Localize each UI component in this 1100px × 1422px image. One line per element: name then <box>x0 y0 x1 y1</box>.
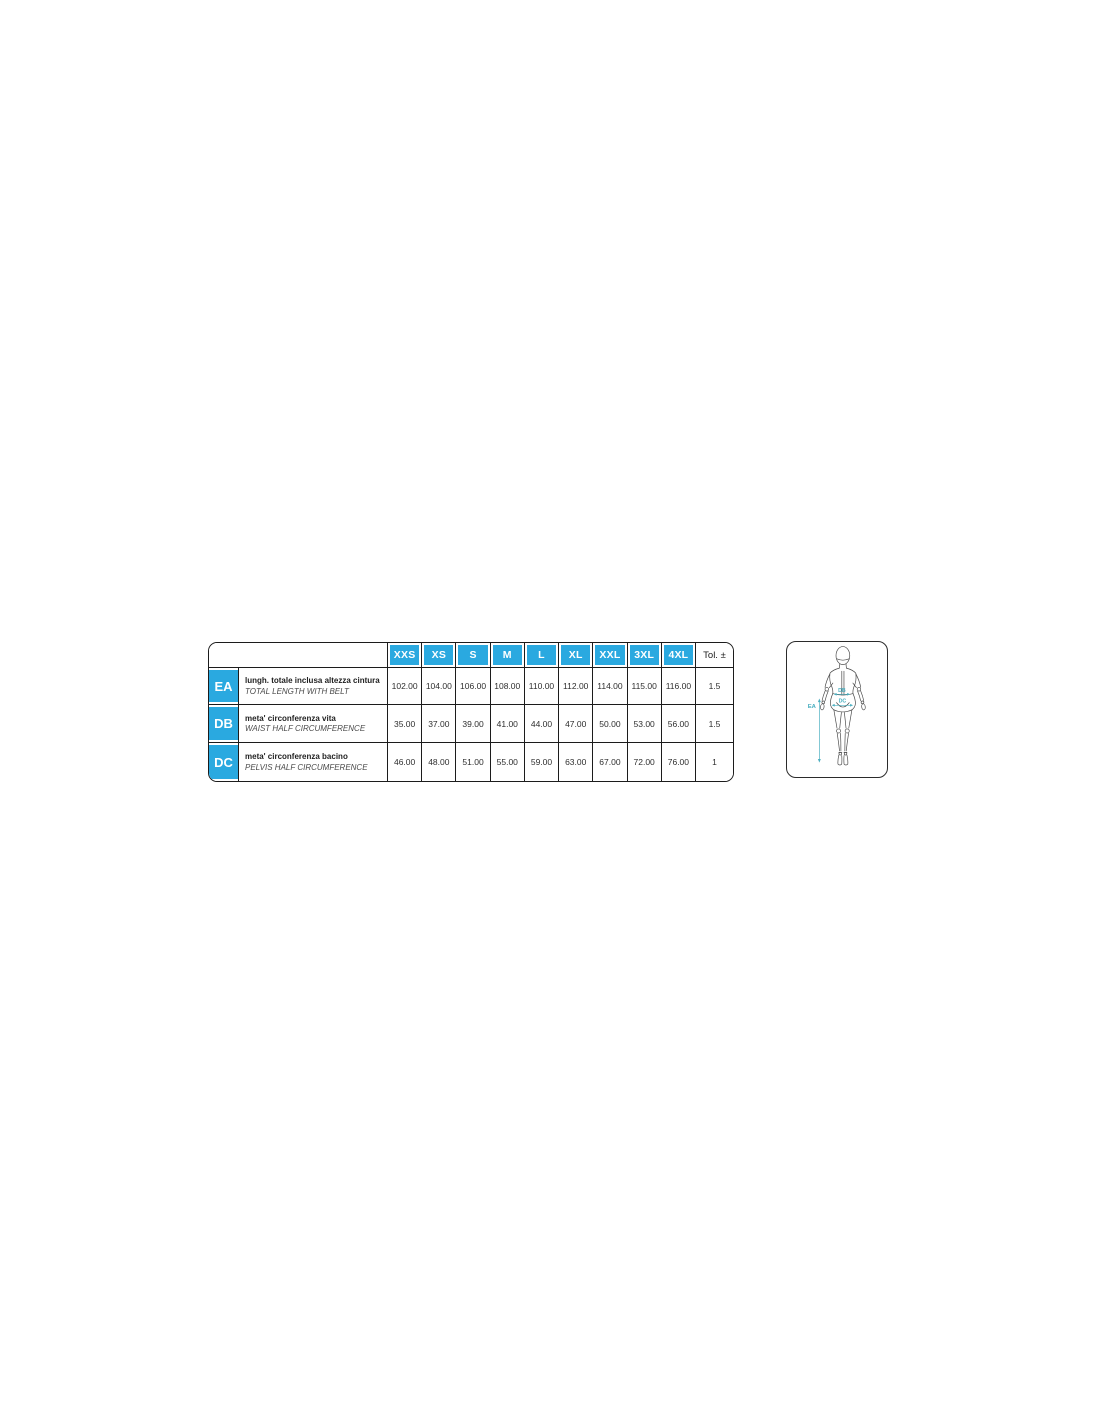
size-value-cell: 35.00 <box>388 705 422 743</box>
ea-arrowhead-top <box>818 699 821 703</box>
size-header-label: 3XL <box>630 645 659 665</box>
size-value-cell: 108.00 <box>491 668 525 705</box>
measure-code-label: EA <box>209 670 238 702</box>
size-value-cell: 48.00 <box>422 743 456 781</box>
size-header-label: XXL <box>595 645 624 665</box>
size-value-cell: 76.00 <box>662 743 696 781</box>
size-value-cell: 41.00 <box>491 705 525 743</box>
size-header-label: L <box>527 645 556 665</box>
size-header-cell: 4XL <box>662 643 696 668</box>
description-english: TOTAL LENGTH WITH BELT <box>245 687 381 696</box>
size-value-cell: 114.00 <box>593 668 627 705</box>
size-value-cell: 50.00 <box>593 705 627 743</box>
size-header-label: XS <box>424 645 453 665</box>
size-header-cell: 3XL <box>628 643 662 668</box>
description-italian: lungh. totale inclusa altezza cintura <box>245 676 381 685</box>
size-header-label: S <box>458 645 487 665</box>
dc-label: DC <box>839 699 847 705</box>
size-value-cell: 37.00 <box>422 705 456 743</box>
size-header-label: M <box>493 645 522 665</box>
measure-code-label: DB <box>209 707 238 740</box>
size-header-label: 4XL <box>664 645 693 665</box>
size-value-cell: 47.00 <box>559 705 593 743</box>
size-value-cell: 72.00 <box>628 743 662 781</box>
measurement-figure: EA DB DC <box>787 642 887 777</box>
size-value-cell: 106.00 <box>456 668 490 705</box>
size-value-cell: 44.00 <box>525 705 559 743</box>
size-value-cell: 102.00 <box>388 668 422 705</box>
size-value-cell: 56.00 <box>662 705 696 743</box>
db-arrowhead-left <box>834 693 837 696</box>
tolerance-value-cell: 1.5 <box>696 705 733 743</box>
dc-arrowhead-right <box>850 704 853 707</box>
description-italian: meta' circonferenza vita <box>245 714 381 723</box>
size-value-cell: 51.00 <box>456 743 490 781</box>
size-header-cell: M <box>491 643 525 668</box>
page: XXSXSSMLXLXXL3XL4XL Tol. ± EAlungh. tota… <box>0 0 1100 1422</box>
measure-description-cell: lungh. totale inclusa altezza cinturaTOT… <box>239 668 388 705</box>
tolerance-header-cell: Tol. ± <box>696 643 733 668</box>
tolerance-value-cell: 1 <box>696 743 733 781</box>
size-header-cell: XXL <box>593 643 627 668</box>
size-header-cell: S <box>456 643 490 668</box>
measure-description-cell: meta' circonferenza bacinoPELVIS HALF CI… <box>239 743 388 781</box>
size-value-cell: 46.00 <box>388 743 422 781</box>
size-value-cell: 39.00 <box>456 705 490 743</box>
db-arrowhead-right <box>847 693 850 696</box>
size-value-cell: 67.00 <box>593 743 627 781</box>
size-header-cell: XL <box>559 643 593 668</box>
size-header-cell: L <box>525 643 559 668</box>
size-value-cell: 59.00 <box>525 743 559 781</box>
size-value-cell: 110.00 <box>525 668 559 705</box>
db-label: DB <box>838 688 846 694</box>
measure-description-cell: meta' circonferenza vitaWAIST HALF CIRCU… <box>239 705 388 743</box>
size-value-cell: 63.00 <box>559 743 593 781</box>
size-value-cell: 55.00 <box>491 743 525 781</box>
size-value-cell: 53.00 <box>628 705 662 743</box>
size-value-cell: 116.00 <box>662 668 696 705</box>
description-english: WAIST HALF CIRCUMFERENCE <box>245 724 381 733</box>
measure-annotations: EA DB DC <box>808 688 853 762</box>
mannequin-head <box>836 647 850 665</box>
measure-code-cell: EA <box>209 668 239 705</box>
dc-arrowhead-left <box>832 704 835 707</box>
measure-code-cell: DB <box>209 705 239 743</box>
size-value-cell: 112.00 <box>559 668 593 705</box>
ea-arrowhead-bottom <box>818 759 821 763</box>
table-corner-cell <box>209 643 388 668</box>
measurement-figure-box: EA DB DC <box>786 641 888 778</box>
mannequin-drawing <box>820 647 866 765</box>
size-header-label: XL <box>561 645 590 665</box>
size-chart-table: XXSXSSMLXLXXL3XL4XL Tol. ± EAlungh. tota… <box>208 642 734 782</box>
tolerance-value-cell: 1.5 <box>696 668 733 705</box>
mannequin-face-line <box>837 659 849 660</box>
size-header-label: XXS <box>390 645 419 665</box>
size-value-cell: 115.00 <box>628 668 662 705</box>
size-header-cell: XS <box>422 643 456 668</box>
measure-code-label: DC <box>209 745 238 779</box>
size-value-cell: 104.00 <box>422 668 456 705</box>
size-header-cell: XXS <box>388 643 422 668</box>
tolerance-header-label: Tol. ± <box>703 650 726 661</box>
description-english: PELVIS HALF CIRCUMFERENCE <box>245 763 381 772</box>
description-italian: meta' circonferenza bacino <box>245 752 381 761</box>
ea-label: EA <box>808 704 817 710</box>
measure-code-cell: DC <box>209 743 239 781</box>
